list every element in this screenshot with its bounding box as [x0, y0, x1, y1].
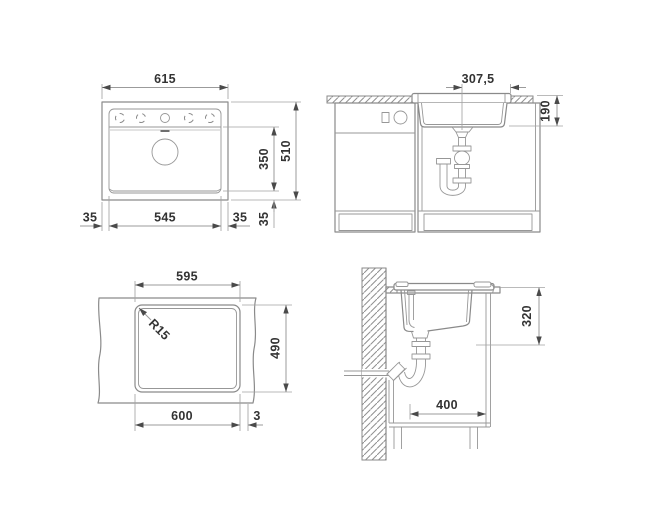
drain-recess	[452, 127, 473, 132]
view-top: 615 510 350 35	[80, 72, 301, 231]
technical-drawing-page: 615 510 350 35	[0, 0, 648, 530]
cutout-outline	[135, 305, 240, 392]
siphon-trap-front	[437, 132, 472, 195]
view-side-section: 320 400	[344, 268, 545, 460]
sink-rim	[412, 94, 511, 104]
drain-flange-side	[412, 331, 430, 338]
overflow-channel	[408, 291, 416, 328]
worktop-left	[327, 96, 414, 103]
dim-320-label: 320	[520, 305, 534, 327]
dimension-bowl-depth: 350	[223, 127, 279, 191]
dim-35-side-label: 35	[257, 212, 271, 227]
dimension-bottom-row: 35 545 35	[80, 196, 250, 231]
worktop-right	[509, 96, 533, 103]
dimension-edge-bottom: 35	[257, 178, 274, 228]
dimension-overall-width: 615	[102, 72, 228, 99]
wall-section	[362, 268, 386, 460]
sink-outer-outline	[102, 102, 228, 200]
siphon-trap-side	[344, 338, 430, 387]
dim-35-left-label: 35	[83, 211, 98, 225]
view-front-section: 307,5 190	[327, 72, 563, 232]
dimension-cutout-width-top: 595	[135, 270, 240, 303]
sink-technical-drawing: 615 510 350 35	[0, 0, 648, 530]
appliance-button-icon	[382, 113, 389, 123]
view-cutout: R15 595 490 600 3	[98, 270, 292, 432]
dim-595-label: 595	[176, 270, 198, 284]
sink-side-section	[394, 282, 494, 338]
appliance-dial-icon	[394, 111, 407, 124]
dim-545-label: 545	[154, 211, 176, 225]
dim-35-right-label: 35	[233, 211, 248, 225]
left-cabinet	[335, 103, 415, 232]
cabinet-side	[389, 293, 491, 449]
bowl-outer-side	[401, 290, 472, 332]
dim-490-label: 490	[269, 337, 283, 359]
trap-wall-nut	[387, 363, 405, 381]
dim-3-label: 3	[253, 409, 260, 423]
dim-400-label: 400	[436, 398, 458, 412]
bowl-outer	[418, 103, 507, 127]
dim-510-label: 510	[279, 140, 293, 162]
dimension-min-depth: 400	[410, 398, 486, 420]
dim-350-label: 350	[257, 148, 271, 170]
sink-front-section	[412, 94, 511, 133]
dim-190-label: 190	[539, 100, 553, 122]
dim-307-5-label: 307,5	[462, 72, 495, 86]
dim-600-label: 600	[171, 409, 193, 423]
dim-615-label: 615	[154, 72, 176, 86]
